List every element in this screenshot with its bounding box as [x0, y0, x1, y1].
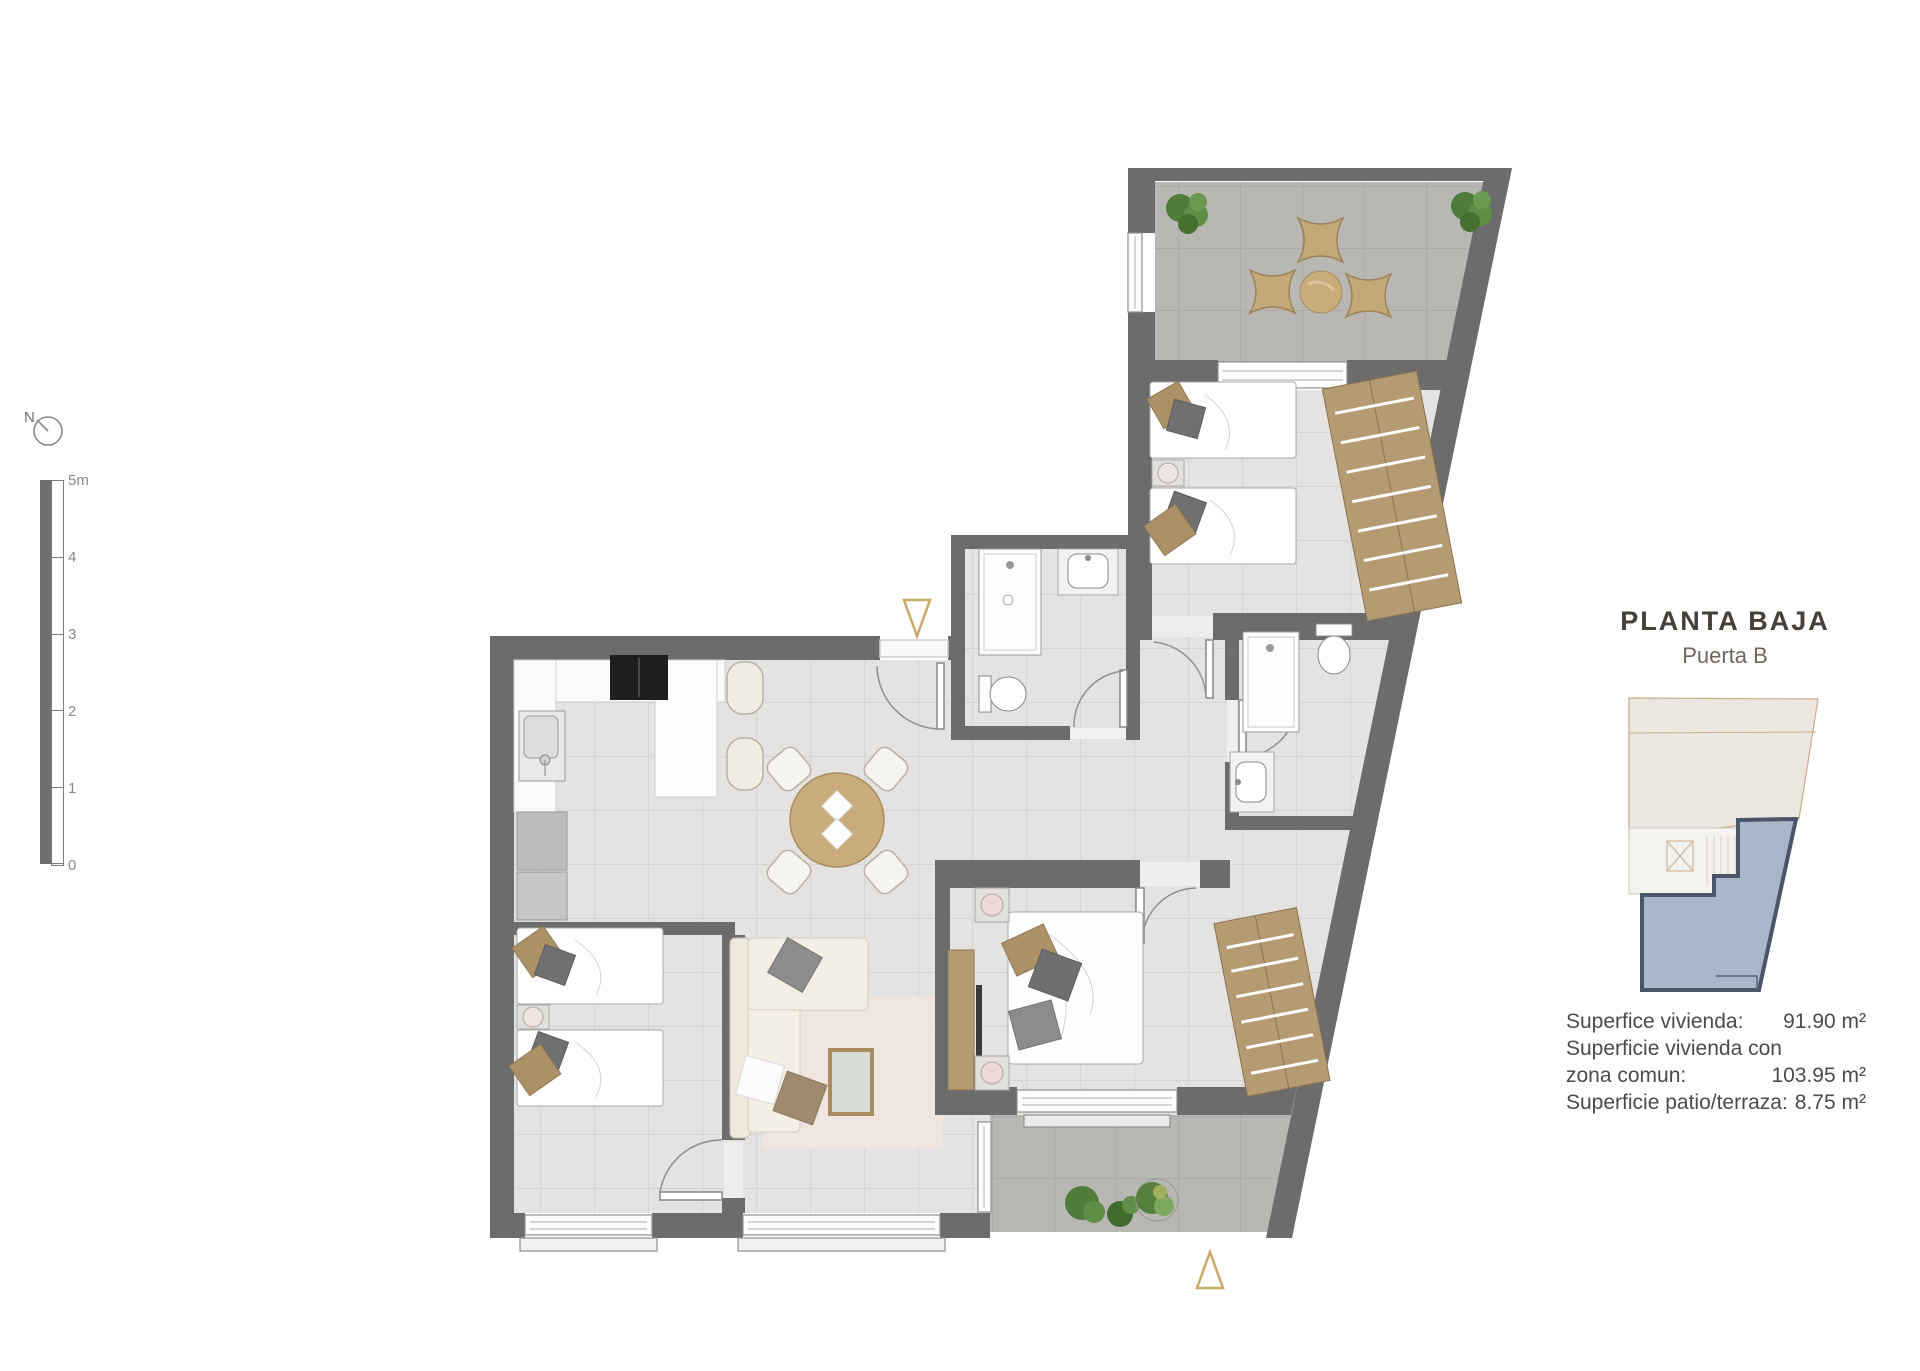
area-label: Superficie patio/terraza:	[1566, 1089, 1788, 1116]
scale-label-0: 0	[68, 857, 76, 874]
toilet-2	[1316, 624, 1352, 674]
area-value: 8.75 m²	[1795, 1089, 1866, 1116]
area-label: Superfice vivienda:	[1566, 1008, 1743, 1035]
twin-bed-1	[1147, 381, 1296, 458]
scale-bar-track	[51, 480, 64, 866]
patio-door-window	[978, 1122, 991, 1212]
area-row: Superfice vivienda: 91.90 m²	[1566, 1008, 1866, 1035]
north-compass: N	[18, 403, 88, 463]
shower-1	[979, 549, 1041, 655]
compass-north-label: N	[24, 409, 35, 426]
key-plan	[1612, 686, 1912, 1016]
floor-plan-page: { "title": { "main": "PLANTA BAJA", "sub…	[0, 0, 1920, 1371]
page-subtitle: Puerta B	[1570, 643, 1880, 669]
toilet-1	[979, 676, 1026, 712]
area-label: zona comun:	[1566, 1062, 1686, 1089]
surface-areas: Superfice vivienda: 91.90 m² Superficie …	[1566, 1008, 1866, 1116]
master-window	[1017, 1090, 1177, 1127]
twin-bed-2	[1144, 488, 1296, 564]
scale-label-4: 4	[68, 549, 76, 566]
tv-bench	[948, 950, 974, 1090]
key-plan-building	[1629, 698, 1818, 838]
terrace-table	[1300, 271, 1342, 313]
patio-floor	[990, 1115, 1291, 1232]
scale-bar	[40, 480, 64, 864]
sink-1	[1058, 549, 1118, 595]
master-bed	[1002, 912, 1143, 1064]
twin-bed-3	[512, 926, 663, 1004]
area-value: 103.95 m²	[1771, 1062, 1866, 1089]
scale-label-1: 1	[68, 780, 76, 797]
scale-label-2: 2	[68, 703, 76, 720]
living-window	[738, 1215, 945, 1251]
terrace-left-window	[1128, 233, 1142, 312]
area-value: 91.90 m²	[1783, 1008, 1866, 1035]
area-row: Superficie vivienda con	[1566, 1035, 1866, 1062]
entrance-marker-bottom	[1197, 1252, 1223, 1288]
page-title: PLANTA BAJA	[1570, 606, 1880, 637]
scale-label-3: 3	[68, 626, 76, 643]
cooktop	[610, 655, 668, 700]
coffee-table	[830, 1050, 872, 1114]
scale-bar-fill	[40, 480, 51, 864]
tv	[976, 985, 982, 1057]
bedroom-bl-window	[520, 1215, 657, 1251]
area-label: Superficie vivienda con	[1566, 1035, 1782, 1062]
area-row: Superficie patio/terraza: 8.75 m²	[1566, 1089, 1866, 1116]
twin-bed-4	[509, 1030, 663, 1106]
sink-2	[1230, 752, 1274, 812]
fridge	[517, 812, 567, 920]
title-block: PLANTA BAJA Puerta B	[1570, 606, 1880, 669]
shower-2	[1243, 632, 1299, 732]
entrance-marker-top	[904, 600, 930, 636]
kitchen-sink	[519, 711, 565, 781]
area-row: zona comun: 103.95 m²	[1566, 1062, 1866, 1089]
scale-label-5m: 5m	[68, 472, 89, 489]
lamp	[523, 1007, 543, 1027]
lamp	[1158, 463, 1178, 483]
